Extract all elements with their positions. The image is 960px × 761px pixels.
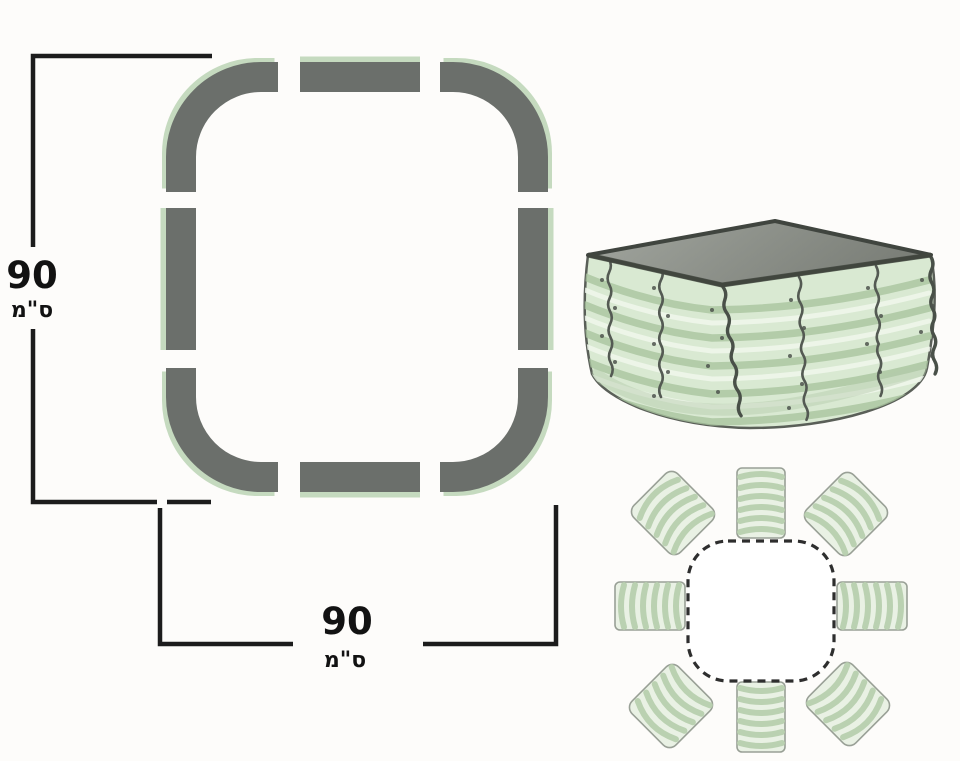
bottom-left-corner-panel <box>181 368 278 477</box>
height-dimension-unit: ס"מ <box>11 298 53 323</box>
top-view-panel-ring <box>176 72 538 482</box>
top-right-corner-panel <box>440 77 533 192</box>
height-dimension-value: 90 <box>6 254 58 297</box>
panel-green-edges <box>176 72 538 482</box>
dimension-lines: 90 ס"מ 90 ס"מ <box>6 56 556 673</box>
exploded-panel-southwest <box>626 661 717 752</box>
exploded-panel-northwest <box>628 468 719 559</box>
exploded-panel-west <box>615 582 685 630</box>
product-dimension-diagram: 90 ס"מ 90 ס"מ <box>0 0 960 761</box>
width-dimension-unit: ס"מ <box>324 648 366 673</box>
width-dimension-value: 90 <box>321 600 373 643</box>
bottom-right-corner-panel <box>440 368 533 477</box>
diagram-svg: 90 ס"מ 90 ס"מ <box>0 0 960 761</box>
assembly-dashed-outline <box>688 541 834 681</box>
assembled-planter-illustration <box>585 221 937 428</box>
exploded-panel-south <box>737 682 785 752</box>
exploded-panel-north <box>737 468 785 538</box>
panel-gray-bodies <box>181 77 533 477</box>
exploded-view <box>615 468 907 752</box>
top-left-corner-panel <box>181 77 278 192</box>
exploded-panel-east <box>837 582 907 630</box>
